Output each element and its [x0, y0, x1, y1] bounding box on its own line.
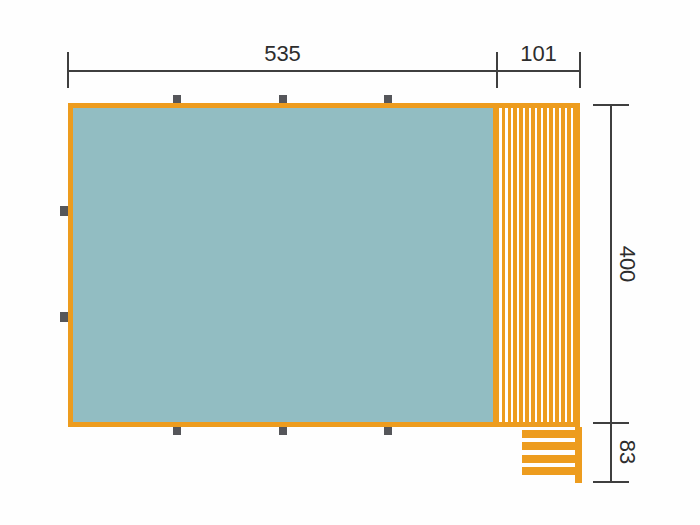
dimension-tick [593, 104, 629, 106]
post-marker-top-1 [173, 95, 181, 103]
post-marker-left-1 [60, 206, 68, 216]
post-marker-top-3 [384, 95, 392, 103]
dimension-label-main-width: 535 [68, 41, 497, 67]
post-marker-top-2 [279, 95, 287, 103]
top-dimension-line [68, 70, 580, 72]
plan-interior [73, 108, 493, 422]
floor-plan-diagram: 535 101 400 83 [0, 0, 700, 525]
post-marker-bottom-3 [384, 427, 392, 435]
dimension-label-steps-height: 83 [614, 422, 640, 482]
dimension-label-deck-width: 101 [497, 41, 580, 67]
plan-outline [68, 103, 580, 427]
dimension-label-main-height: 400 [614, 234, 640, 294]
right-dimension-line [610, 105, 612, 482]
steps-rail [575, 427, 582, 483]
step-bar-1 [522, 430, 575, 438]
step-bar-4 [522, 467, 575, 475]
step-bar-2 [522, 442, 575, 450]
post-marker-bottom-2 [279, 427, 287, 435]
post-marker-bottom-1 [173, 427, 181, 435]
step-bar-3 [522, 455, 575, 463]
deck-slats [499, 108, 575, 422]
post-marker-left-2 [60, 312, 68, 322]
